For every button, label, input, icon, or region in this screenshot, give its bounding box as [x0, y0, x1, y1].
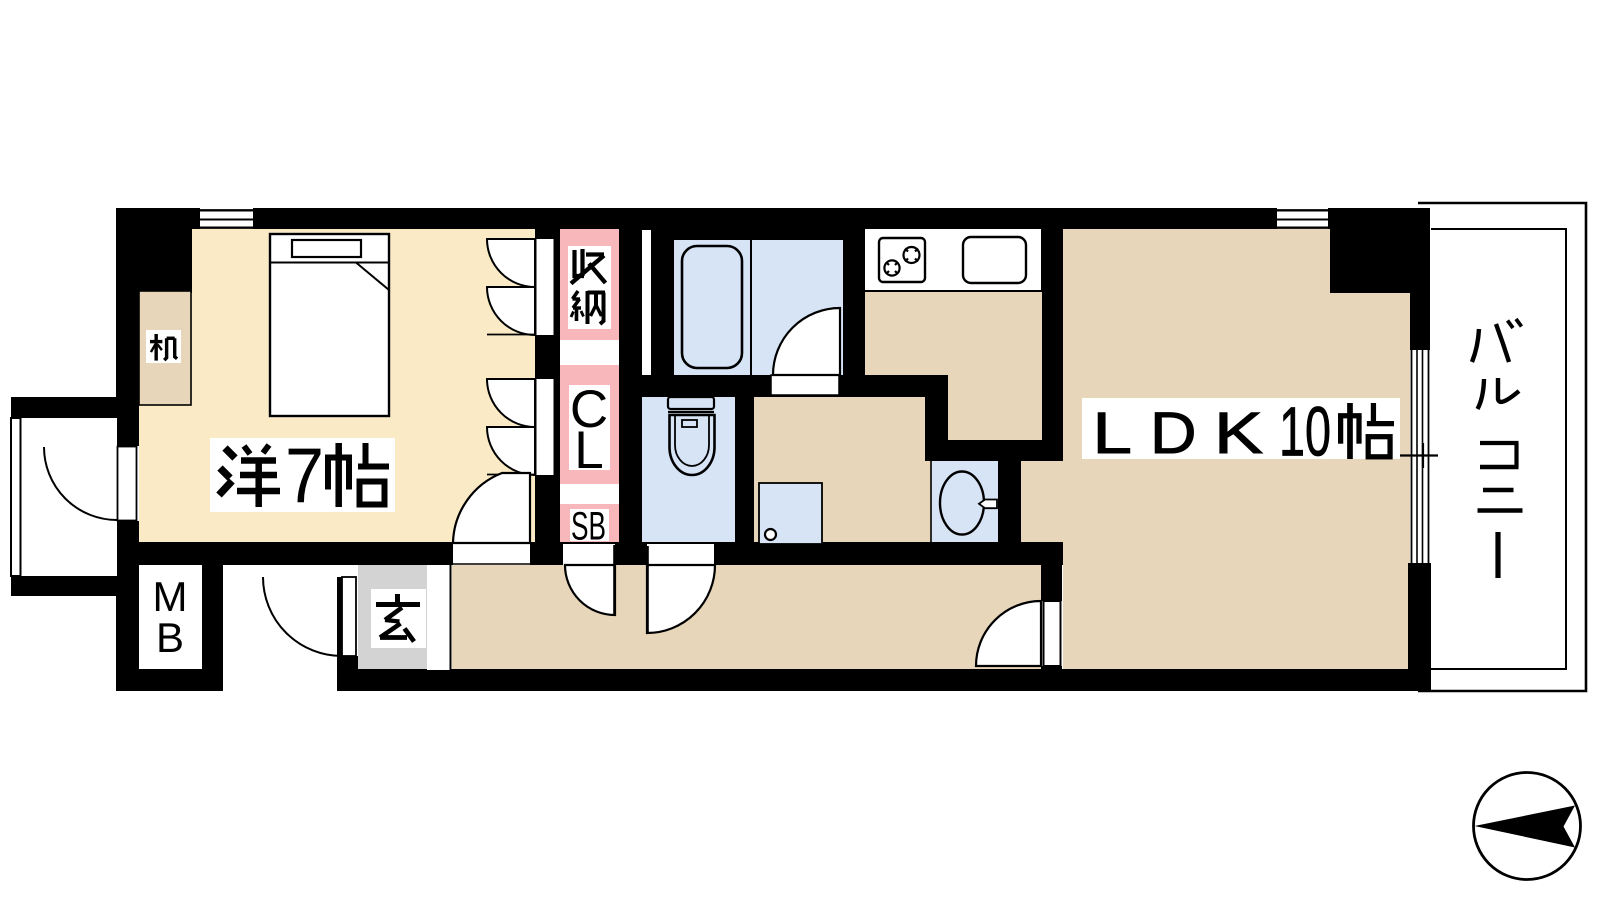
svg-text:7: 7 [285, 432, 324, 520]
svg-text:L: L [1093, 401, 1133, 466]
svg-text:SB: SB [571, 505, 606, 549]
svg-text:B: B [156, 614, 184, 661]
svg-text:D: D [1150, 401, 1197, 466]
svg-text:10: 10 [1279, 393, 1331, 471]
svg-text:K: K [1214, 401, 1263, 466]
svg-text:M: M [153, 573, 188, 620]
svg-text:L: L [574, 421, 603, 480]
